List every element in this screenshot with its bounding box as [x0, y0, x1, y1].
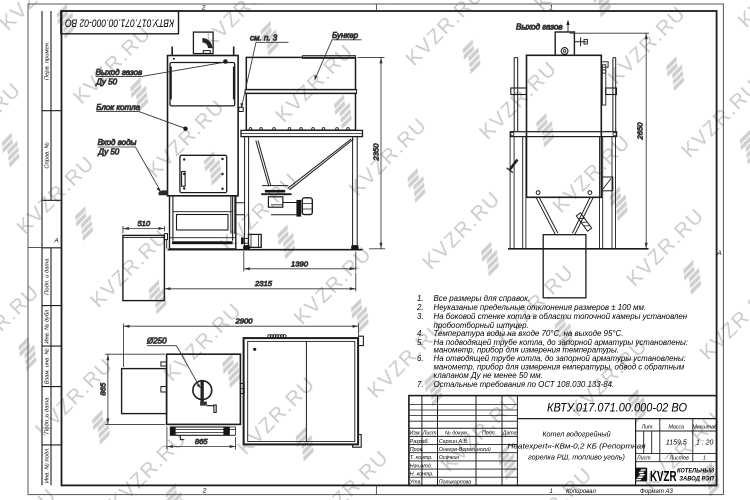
svg-text:Лист: Лист — [422, 430, 437, 436]
svg-text:Вход воды: Вход воды — [98, 138, 137, 147]
svg-text:7.: 7. — [417, 380, 424, 389]
svg-text:Остальные требования по ОСТ 10: Остальные требования по ОСТ 108.030.133-… — [434, 380, 615, 389]
svg-text:2350: 2350 — [371, 143, 380, 162]
svg-text:Масса: Масса — [668, 424, 684, 430]
svg-text:1: 1 — [549, 5, 553, 12]
svg-text:Изм.: Изм. — [410, 430, 421, 436]
svg-text:А: А — [716, 250, 721, 257]
svg-text:Т. контр.: Т. контр. — [410, 455, 433, 461]
svg-text:1 : 20: 1 : 20 — [696, 439, 714, 446]
svg-text:Блок котла: Блок котла — [96, 103, 140, 112]
svg-text:клапаном Ду не менее 50 мм.: клапаном Ду не менее 50 мм. — [434, 371, 543, 380]
svg-text:На боковой стенке котла в обла: На боковой стенке котла в области топочн… — [434, 312, 688, 321]
svg-text:Осечкин: Осечкин — [439, 455, 460, 461]
svg-text:Котел водогрейный: Котел водогрейный — [542, 429, 610, 438]
svg-text:Сергин А.В.: Сергин А.В. — [439, 439, 469, 445]
svg-text:КВТУ.017.071.00.000-02 ВО: КВТУ.017.071.00.000-02 ВО — [547, 401, 687, 415]
svg-text:Выход газов: Выход газов — [96, 68, 143, 77]
svg-text:6.: 6. — [417, 354, 424, 363]
svg-text:Листов: Листов — [669, 455, 690, 461]
svg-text:Подп.: Подп. — [482, 430, 496, 436]
svg-text:Поликарпова: Поликарпова — [439, 480, 472, 486]
svg-text:2900: 2900 — [235, 316, 254, 325]
svg-text:горелка РШ, топливо уголь): горелка РШ, топливо уголь) — [528, 452, 625, 461]
svg-text:Масштаб: Масштаб — [692, 424, 718, 430]
svg-text:Лит.: Лит. — [640, 424, 653, 430]
svg-text:Онегов-Верегинский: Онегов-Верегинский — [439, 446, 491, 453]
svg-text:1: 1 — [703, 455, 706, 461]
svg-text:ЗАВОД РЭП: ЗАВОД РЭП — [679, 476, 714, 483]
svg-text:Справ. №: Справ. № — [45, 142, 51, 168]
svg-text:2: 2 — [201, 5, 206, 12]
svg-text:Выход газов: Выход газов — [516, 22, 563, 31]
svg-text:Пров.: Пров. — [410, 447, 424, 453]
svg-text:510: 510 — [137, 219, 150, 228]
svg-text:1390: 1390 — [291, 259, 309, 268]
svg-text:Лист: Лист — [636, 455, 651, 461]
svg-text:Разраб.: Разраб. — [410, 439, 429, 445]
svg-text:1.: 1. — [417, 294, 424, 303]
svg-text:Heatexpert«-КВм-0,2 КБ (Репорт: Heatexpert«-КВм-0,2 КБ (Репортная — [508, 441, 646, 450]
svg-text:Подп. и дата: Подп. и дата — [45, 397, 51, 434]
svg-text:Ду 50: Ду 50 — [97, 148, 119, 157]
svg-text:865: 865 — [98, 382, 107, 395]
svg-text:КВТУ.017.071.00.000-02 ВО: КВТУ.017.071.00.000-02 ВО — [65, 17, 174, 29]
svg-text:Взам. инв. №: Взам. инв. № — [45, 348, 51, 384]
svg-text:1: 1 — [550, 489, 553, 495]
svg-text:Неуказаные предельные отклонен: Неуказаные предельные отклонения размеро… — [434, 303, 647, 312]
svg-text:2315: 2315 — [254, 279, 273, 288]
svg-text:Инв. № подл.: Инв. № подл. — [45, 447, 51, 483]
svg-text:А: А — [53, 238, 58, 245]
svg-text:2.: 2. — [416, 303, 424, 312]
svg-text:Ду 50: Ду 50 — [95, 77, 117, 86]
svg-text:№ докум.: № докум. — [445, 430, 468, 436]
svg-text:Дата: Дата — [502, 430, 517, 436]
svg-text:5.: 5. — [417, 338, 424, 347]
svg-text:Копировал: Копировал — [566, 489, 596, 495]
svg-text:KVZR: KVZR — [650, 469, 677, 485]
svg-text:см. п. 3: см. п. 3 — [250, 34, 278, 43]
svg-text:Инв. № дубл.: Инв. № дубл. — [45, 308, 51, 344]
svg-text:Бункер: Бункер — [332, 31, 359, 40]
svg-text:Перв. примен.: Перв. примен. — [45, 42, 51, 81]
svg-text:Нач.отд.: Нач.отд. — [410, 463, 432, 469]
svg-text:Подп. и дата: Подп. и дата — [45, 258, 51, 295]
svg-text:Ø250: Ø250 — [146, 337, 167, 346]
svg-text:Все размеры для справок.: Все размеры для справок. — [434, 294, 531, 303]
svg-text:КОТЕЛЬНЫЙ: КОТЕЛЬНЫЙ — [677, 466, 714, 475]
svg-text:4.: 4. — [417, 329, 424, 338]
svg-text:манометр, прибор для измерения: манометр, прибор для измерения температу… — [434, 345, 619, 354]
svg-text:Н. контр.: Н. контр. — [410, 471, 434, 477]
svg-text:Утв.: Утв. — [410, 480, 422, 486]
svg-text:2650: 2650 — [635, 122, 644, 141]
svg-text:Формат А3: Формат А3 — [640, 489, 673, 495]
svg-text:Температура воды на входе 70°С: Температура воды на входе 70°С, на выход… — [434, 329, 624, 338]
svg-text:3.: 3. — [417, 312, 424, 321]
svg-text:2: 2 — [202, 488, 207, 495]
svg-text:865: 865 — [195, 437, 208, 446]
svg-text:1159,5: 1159,5 — [666, 439, 687, 446]
